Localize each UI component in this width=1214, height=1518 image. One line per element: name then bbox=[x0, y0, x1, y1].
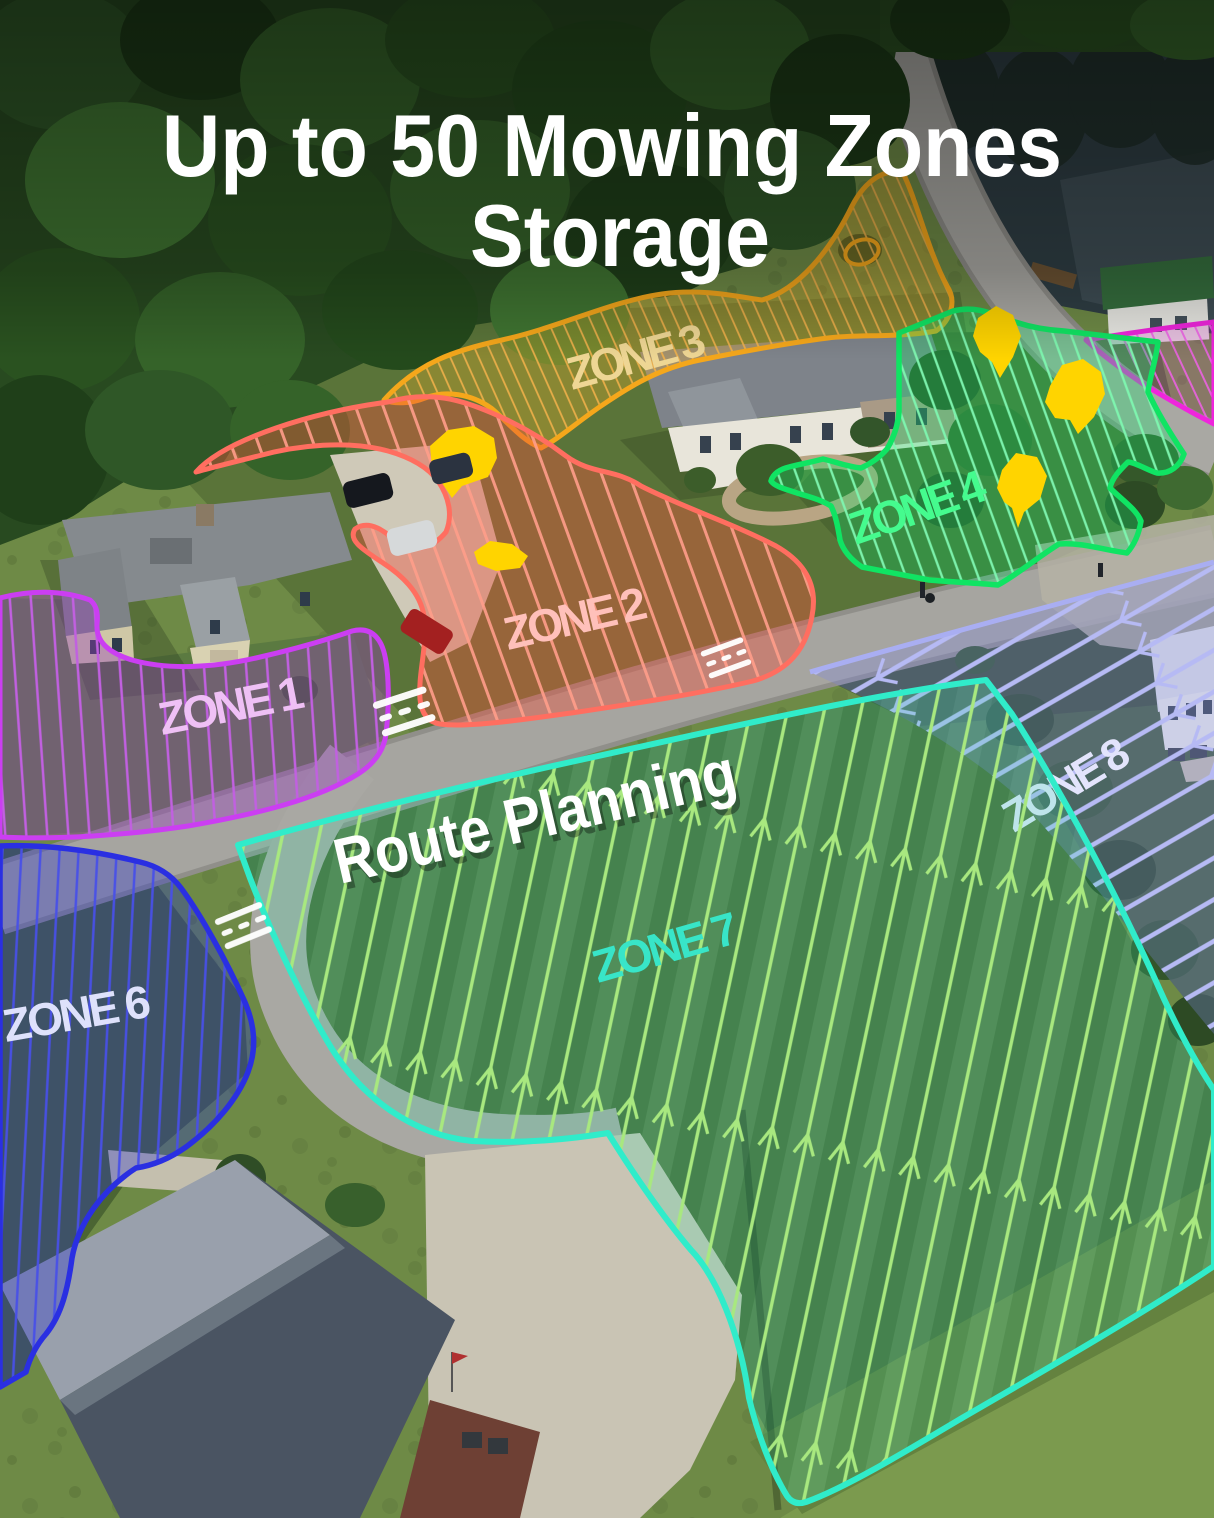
mailbox bbox=[1098, 563, 1103, 577]
chimney bbox=[196, 504, 214, 526]
mailbox bbox=[920, 582, 925, 598]
ac-unit bbox=[462, 1432, 482, 1448]
ac-unit bbox=[488, 1438, 508, 1454]
person bbox=[925, 593, 935, 603]
headline-line2: Storage bbox=[470, 186, 770, 285]
headline-line1: Up to 50 Mowing Zones bbox=[162, 96, 1062, 195]
mowing-zones-marketing-image: ZONE 3 ZONE 1 ZONE 2 ZONE 4 ZONE 6 ZONE … bbox=[0, 0, 1214, 1518]
aerial-scene: ZONE 3 ZONE 1 ZONE 2 ZONE 4 ZONE 6 ZONE … bbox=[0, 0, 1214, 1518]
